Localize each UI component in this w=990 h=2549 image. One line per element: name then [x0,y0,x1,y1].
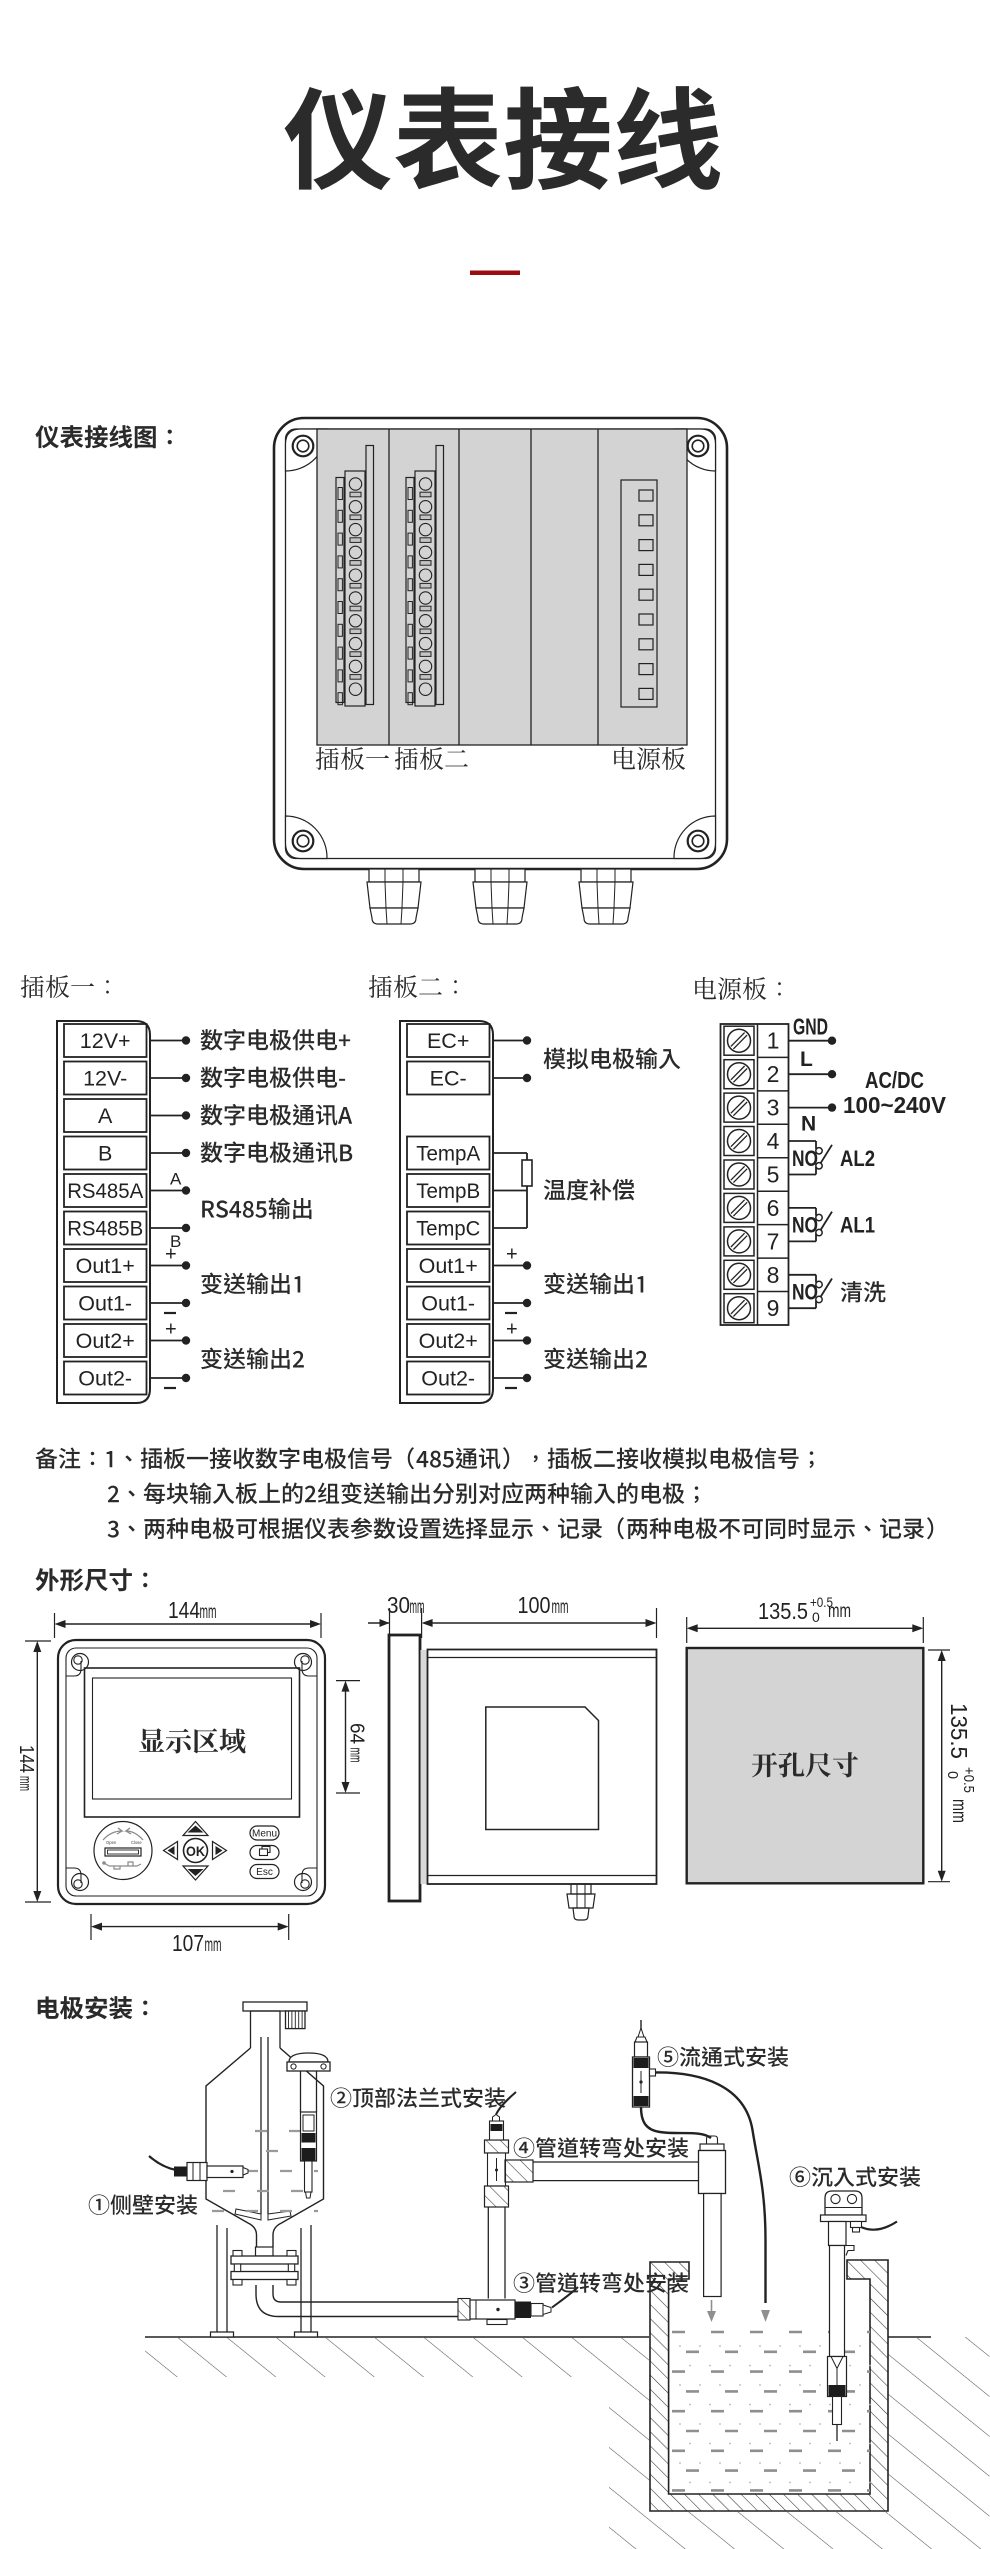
svg-text:A: A [98,1104,113,1128]
svg-text:RS485A: RS485A [67,1179,144,1203]
svg-text:AL1: AL1 [840,1213,875,1238]
svg-text:135.5: 135.5 [758,1598,808,1624]
svg-text:1: 1 [767,1028,780,1054]
svg-text:mm: mm [948,1799,969,1823]
svg-text:Out2-: Out2- [421,1367,475,1391]
svg-text:A: A [170,1170,182,1189]
svg-text:GND: GND [793,1014,828,1040]
svg-text:135.5: 135.5 [946,1703,972,1759]
svg-text:Out2+: Out2+ [76,1329,135,1353]
svg-text:3: 3 [767,1095,780,1121]
svg-text:Out1-: Out1- [78,1292,132,1316]
svg-text:L: L [800,1048,813,1071]
svg-text:Out2+: Out2+ [419,1329,478,1353]
svg-text:0: 0 [812,1609,820,1625]
svg-text:TempC: TempC [416,1217,480,1241]
svg-text:100~240V: 100~240V [843,1092,947,1118]
svg-text:OK: OK [186,1844,205,1859]
svg-text:Out1+: Out1+ [419,1254,478,1278]
svg-text:mm: mm [828,1601,851,1622]
svg-text:Out1+: Out1+ [76,1254,135,1278]
svg-text:6: 6 [767,1195,780,1221]
svg-text:Out2-: Out2- [78,1367,132,1391]
svg-text:mm: mm [200,1602,217,1623]
svg-text:12V+: 12V+ [80,1029,131,1053]
svg-text:EC-: EC- [430,1067,467,1091]
svg-text:Esc: Esc [256,1867,273,1878]
svg-text:2: 2 [767,1061,780,1087]
svg-text:mm: mm [347,1748,365,1763]
svg-text:+: + [165,1244,177,1266]
svg-text:Close: Close [131,1840,142,1845]
svg-text:+: + [506,1319,518,1341]
svg-text:5: 5 [767,1162,780,1188]
svg-text:mm: mm [16,1776,34,1791]
svg-text:NO: NO [792,1146,818,1171]
svg-text:64: 64 [346,1723,368,1744]
svg-text:EC+: EC+ [427,1029,469,1053]
svg-text:Menu: Menu [252,1829,277,1840]
svg-text:NO: NO [792,1280,818,1305]
svg-text:NO: NO [792,1213,818,1238]
svg-text:+: + [165,1319,177,1341]
svg-text:mm: mm [410,1597,425,1618]
svg-text:TempB: TempB [416,1179,480,1203]
svg-text:4: 4 [767,1128,780,1154]
svg-text:12V-: 12V- [83,1067,127,1091]
svg-text:AL2: AL2 [840,1146,875,1171]
svg-text:9: 9 [767,1295,780,1321]
svg-text:Open: Open [106,1840,117,1845]
svg-text:7: 7 [767,1228,780,1254]
svg-text:100: 100 [518,1592,551,1618]
svg-text:30: 30 [387,1592,410,1618]
svg-text:107: 107 [172,1930,204,1956]
svg-text:+: + [506,1244,518,1266]
svg-text:N: N [801,1113,816,1136]
svg-text:Out1-: Out1- [421,1292,475,1316]
svg-text:+0.5: +0.5 [960,1767,976,1793]
svg-text:B: B [98,1142,112,1166]
svg-text:144: 144 [15,1745,37,1773]
svg-text:AC/DC: AC/DC [865,1067,924,1093]
svg-text:144: 144 [168,1597,200,1623]
svg-text:RS485B: RS485B [67,1217,143,1241]
svg-text:mm: mm [552,1597,569,1618]
svg-text:8: 8 [767,1262,780,1288]
svg-text:0: 0 [944,1771,960,1779]
svg-text:mm: mm [205,1935,222,1956]
svg-text:TempA: TempA [416,1142,481,1166]
